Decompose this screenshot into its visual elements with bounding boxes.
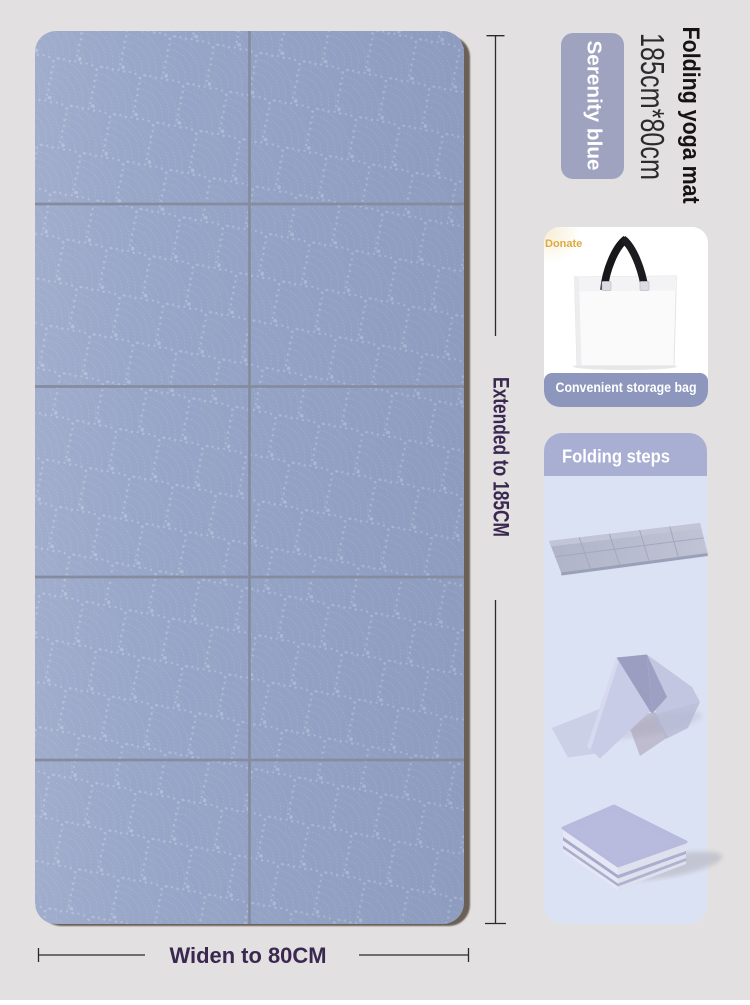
svg-text:Folding steps: Folding steps [562, 447, 670, 467]
svg-text:Serenity blue: Serenity blue [583, 41, 605, 171]
svg-text:Extended to 185CM: Extended to 185CM [489, 377, 514, 537]
svg-text:Widen to 80CM: Widen to 80CM [170, 943, 327, 968]
svg-text:Folding yoga mat: Folding yoga mat [677, 27, 704, 204]
svg-text:Convenient storage bag: Convenient storage bag [556, 379, 697, 395]
svg-text:Donate: Donate [545, 238, 582, 250]
svg-text:185cm*80cm: 185cm*80cm [634, 33, 671, 180]
